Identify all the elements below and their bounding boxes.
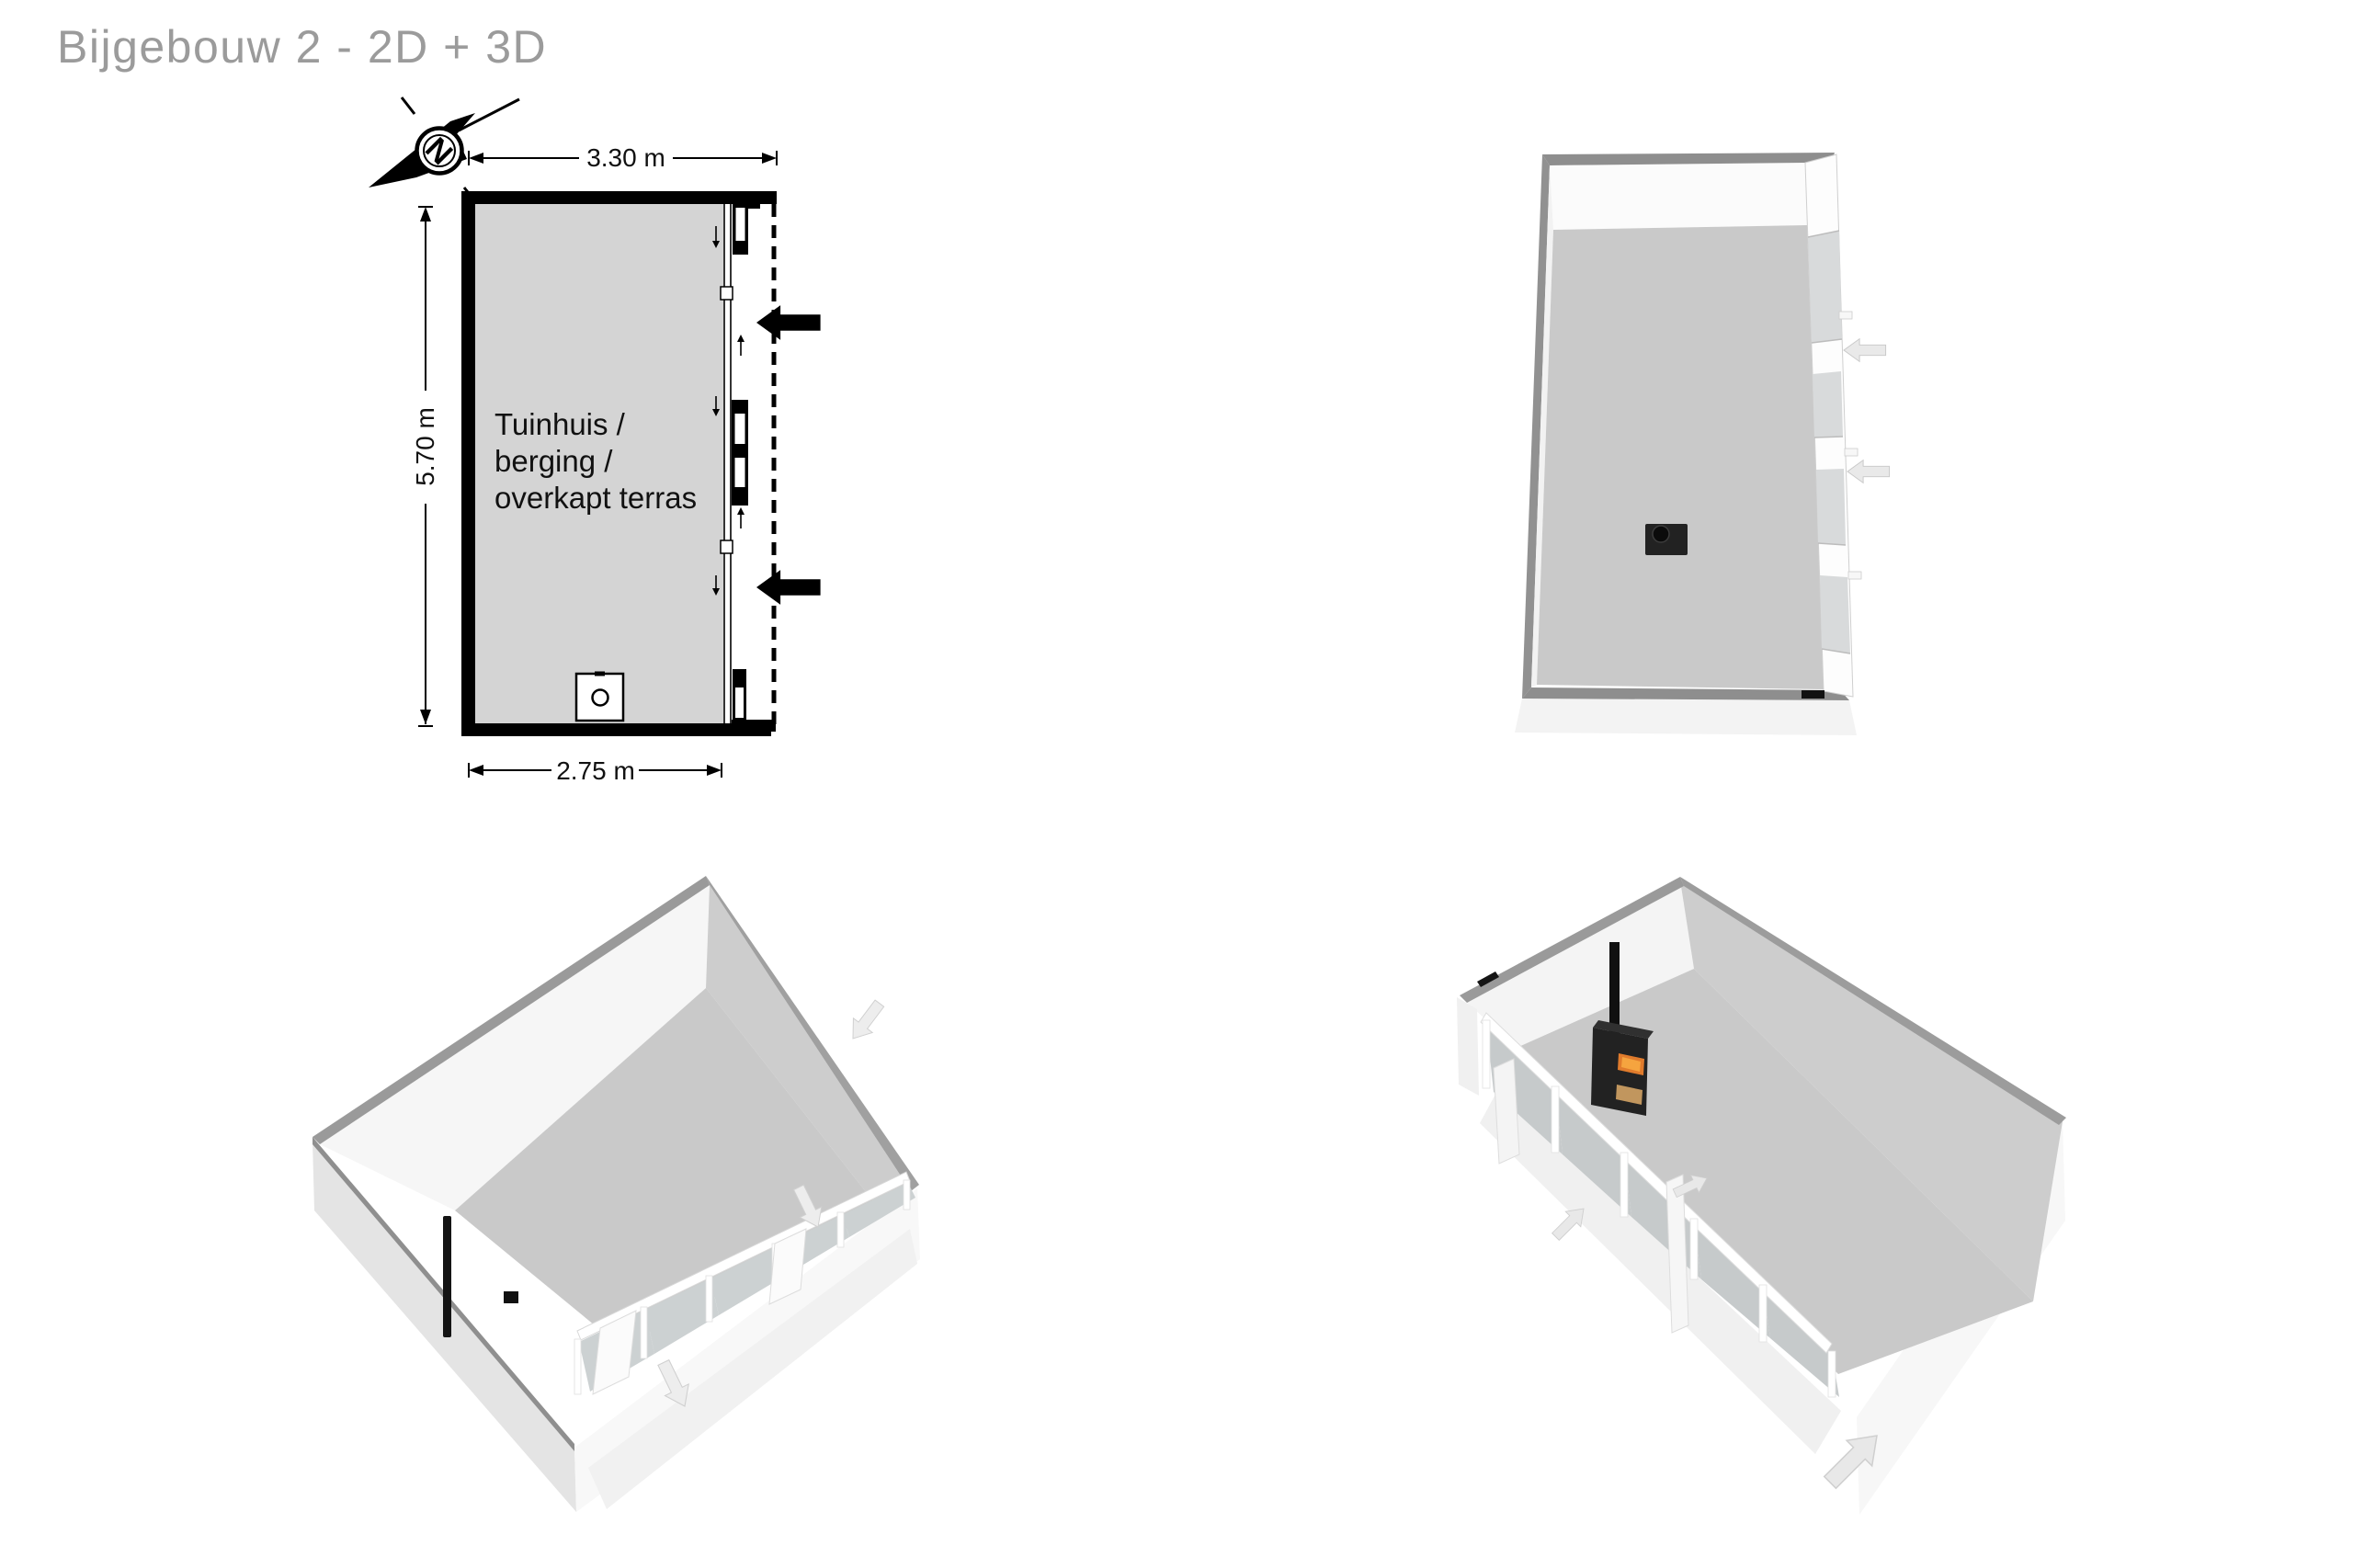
- view-3d-top-down: [1498, 138, 1958, 781]
- outer-post: [1457, 997, 1479, 1096]
- glass-pane: [1813, 371, 1843, 437]
- door-post: [1759, 1285, 1767, 1342]
- open-wing: [1848, 572, 1861, 579]
- room-label-line1: Tuinhuis /: [494, 407, 626, 441]
- door-post: [706, 1276, 712, 1322]
- door-post: [574, 1339, 581, 1394]
- door-post: [1483, 1020, 1490, 1088]
- door-post: [837, 1212, 844, 1247]
- dimension-bottom-label: 2.75 m: [556, 756, 635, 785]
- stove-icon: [1645, 524, 1688, 555]
- view-3d-iso-front: [303, 869, 938, 1517]
- entrance-arrow-icon: [1847, 460, 1890, 483]
- dimension-top-label: 3.30 m: [586, 143, 665, 172]
- wall-top: [461, 191, 777, 204]
- entrance-arrow-icon: [756, 570, 821, 605]
- open-wing: [1845, 449, 1858, 456]
- dimension-left-label: 5.70 m: [411, 407, 439, 486]
- door-post-top: [733, 199, 760, 255]
- glass-pane: [1816, 469, 1846, 545]
- room-label-line3: overkapt terras: [494, 481, 697, 515]
- inner-wall-north: [1550, 163, 1807, 230]
- door-post: [1552, 1086, 1559, 1153]
- door-post: [904, 1180, 910, 1210]
- floor-plan-2d: N 3.30 m 5.70 m: [363, 74, 836, 809]
- outer-apron: [1515, 699, 1857, 735]
- wall-bottom: [461, 723, 771, 736]
- floorplan-sheet: Bijgebouw 2 - 2D + 3D N 3.30 m: [0, 0, 2353, 1568]
- door-post: [641, 1307, 647, 1358]
- dimension-bottom: 2.75 m: [469, 756, 722, 785]
- dimension-top: 3.30 m: [469, 143, 777, 172]
- door-post: [1620, 1153, 1628, 1217]
- entrance-arrow-icon: [844, 996, 890, 1046]
- entrance-arrow-icon: [1844, 339, 1886, 362]
- floor: [1537, 225, 1824, 689]
- open-wing: [1839, 312, 1852, 319]
- wall-top-band: [1522, 687, 1849, 700]
- threshold-mark: [1802, 690, 1824, 699]
- door-post-middle: [732, 400, 748, 506]
- glass-pane: [1808, 231, 1842, 343]
- view-3d-iso-back: [1429, 873, 2174, 1517]
- page-title: Bijgebouw 2 - 2D + 3D: [57, 20, 547, 74]
- door-post: [1828, 1351, 1836, 1397]
- door-post-bottom: [732, 669, 776, 732]
- wall-left: [461, 191, 475, 736]
- compass-icon: N: [369, 97, 519, 204]
- room-label-line2: berging /: [494, 444, 613, 478]
- door-post: [1690, 1219, 1698, 1279]
- glass-pane: [1820, 575, 1850, 653]
- stove-symbol: [576, 674, 623, 721]
- entrance-arrow-icon: [756, 305, 821, 340]
- dimension-left: 5.70 m: [411, 207, 439, 726]
- chimney-icon: [1609, 942, 1620, 1034]
